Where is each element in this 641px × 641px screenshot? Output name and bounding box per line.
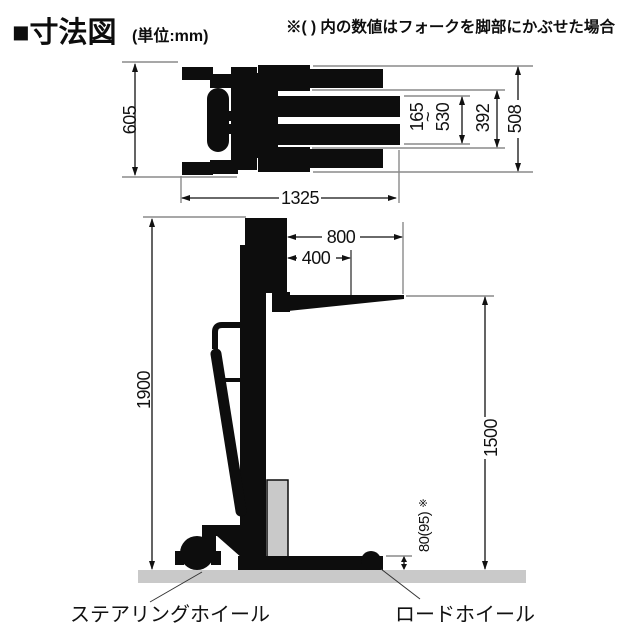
dim-lift-height: 1500	[481, 296, 501, 570]
fork-lower-top-view	[278, 124, 400, 145]
load-wheel-label: ロードホイール	[395, 604, 535, 626]
dim-label-400: 400	[302, 248, 331, 268]
dim-label-508: 508	[505, 104, 525, 133]
handle-grip-tube	[215, 325, 241, 349]
dim-legs-inner-width: 392	[473, 90, 500, 148]
fork-heel	[272, 292, 290, 312]
dimension-diagram: ■寸法図 (単位:mm) ※( ) 内の数値はフォークを脚部にかぶせた場合	[0, 0, 641, 641]
dim-leg-height: 80(95) ※	[401, 498, 433, 570]
caster-housing-bottom	[182, 162, 213, 175]
dim-legs-outer-width: 508	[505, 66, 525, 172]
wheel-link-lower	[226, 124, 238, 134]
handle-shaft	[216, 354, 241, 511]
steering-wheel-bracket-left	[175, 551, 184, 565]
load-wheel	[361, 551, 381, 571]
dim-label-800: 800	[327, 227, 356, 247]
top-view-drawing	[182, 65, 400, 175]
dim-label-605: 605	[120, 105, 140, 134]
outrigger-leg-top	[310, 69, 383, 88]
note-text: ※( ) 内の数値はフォークを脚部にかぶせた場合	[286, 17, 615, 36]
steering-wheel-bracket-right	[211, 551, 221, 565]
steering-wheel	[180, 536, 214, 570]
dim-label-note-mark: ※	[418, 498, 430, 507]
dim-label-1325: 1325	[281, 188, 320, 208]
chassis-step	[202, 525, 242, 536]
pump-unit	[267, 480, 288, 557]
side-view-drawing	[138, 218, 526, 583]
unit-label: (単位:mm)	[132, 26, 208, 45]
dim-label-1500: 1500	[481, 418, 501, 457]
dim-load-center: 400	[287, 248, 351, 268]
dim-overall-length: 1325	[181, 188, 397, 208]
fork-upper-top-view	[278, 96, 400, 117]
fork-blade	[288, 295, 404, 311]
page-title: ■寸法図	[12, 16, 117, 49]
header: ■寸法図 (単位:mm) ※( ) 内の数値はフォークを脚部にかぶせた場合	[12, 16, 615, 49]
outrigger-leg-bottom	[310, 149, 383, 168]
dim-label-80-95: 80(95)	[416, 511, 433, 552]
dim-overall-height: 1900	[134, 218, 155, 570]
dim-overall-width: 605	[120, 63, 140, 176]
wheel-link-upper	[226, 111, 238, 121]
dim-label-530: 530	[433, 102, 453, 131]
dim-label-1900: 1900	[134, 370, 154, 409]
fork-carriage	[265, 218, 287, 293]
ground	[138, 570, 526, 583]
leg-mount-bottom	[258, 147, 310, 172]
leg-mount-top	[258, 65, 310, 91]
steering-wheel-label: ステアリングホイール	[70, 603, 270, 626]
dim-fork-length: 800	[287, 227, 403, 247]
steering-wheel-top-view	[207, 88, 229, 152]
caster-housing-top	[182, 67, 213, 80]
dim-label-392: 392	[473, 103, 493, 132]
dim-fork-spread: 165 ~ 530	[407, 96, 465, 144]
